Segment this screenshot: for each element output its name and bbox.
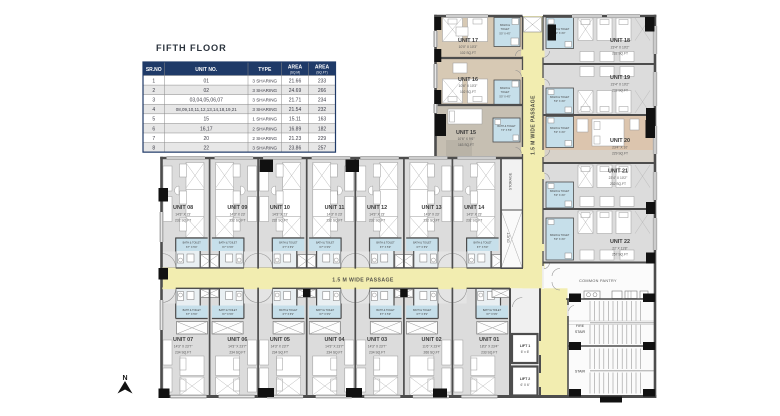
svg-text:UNIT 18: UNIT 18 [610,38,630,44]
svg-text:266: 266 [318,88,327,94]
svg-text:SR.NO: SR.NO [146,67,162,73]
svg-text:BATH & TOILET: BATH & TOILET [497,125,516,128]
svg-text:1 SHARING: 1 SHARING [252,117,277,122]
svg-text:UNIT NO.: UNIT NO. [195,67,218,73]
svg-text:FIFTH FLOOR: FIFTH FLOOR [156,43,227,53]
svg-text:BATH & TOILET: BATH & TOILET [219,242,238,245]
svg-text:22' X 11'8": 22' X 11'8" [612,247,628,251]
svg-text:182: 182 [318,126,327,132]
svg-text:232 SQ.FT: 232 SQ.FT [424,219,440,223]
svg-text:5: 5 [152,117,155,123]
svg-text:3 SHARING: 3 SHARING [252,88,277,93]
svg-text:14'3" X 23': 14'3" X 23' [272,213,288,217]
svg-text:11'6" X 23'4": 11'6" X 23'4" [422,345,441,349]
svg-text:6'7" X 5'9": 6'7" X 5'9" [486,313,497,316]
svg-text:232 SQ.FT: 232 SQ.FT [612,51,628,55]
svg-text:BATH & TOILET: BATH & TOILET [376,242,395,245]
svg-text:UNIT 04: UNIT 04 [324,337,344,343]
svg-text:BATH & TOILET: BATH & TOILET [316,242,335,245]
svg-text:23'4" X 10': 23'4" X 10' [612,146,628,150]
svg-text:LIFT 2: LIFT 2 [520,377,531,381]
svg-text:UNIT 22: UNIT 22 [610,239,630,245]
svg-text:6: 6 [152,126,155,132]
svg-text:257 SQ.FT: 257 SQ.FT [612,252,628,256]
svg-text:08,09,10,11,12,13,14,18,19,21: 08,09,10,11,12,13,14,18,19,21 [176,107,237,112]
svg-text:UNIT 09: UNIT 09 [227,205,247,211]
svg-text:5'0" X 4'0": 5'0" X 4'0" [554,131,565,134]
svg-text:UNIT 16: UNIT 16 [458,77,478,83]
svg-text:UNIT 10: UNIT 10 [270,205,290,211]
svg-text:(SQ.M): (SQ.M) [290,71,300,75]
svg-text:BASIN & TOILET: BASIN & TOILET [550,127,570,130]
svg-text:BATH & TOILET: BATH & TOILET [279,242,298,245]
svg-text:163 SQ.FT: 163 SQ.FT [458,143,474,147]
svg-text:6'7" X 5'9": 6'7" X 5'9" [222,246,233,249]
svg-text:UNIT 11: UNIT 11 [325,205,345,211]
svg-text:6'7" X 5'9": 6'7" X 5'9" [283,313,294,316]
svg-text:BATH & TOILET: BATH & TOILET [279,309,298,312]
svg-text:229 SQ.FT: 229 SQ.FT [612,151,628,155]
svg-text:6'7" X 5'9": 6'7" X 5'9" [380,313,391,316]
svg-text:1.5 M WIDE PASSAGE: 1.5 M WIDE PASSAGE [531,95,537,155]
svg-text:UNIT 12: UNIT 12 [367,205,387,211]
svg-text:23'4" X 10'2": 23'4" X 10'2" [609,176,628,180]
svg-text:1.5 M WIDE PASSAGE: 1.5 M WIDE PASSAGE [332,278,394,284]
svg-text:233 SQ.FT: 233 SQ.FT [481,351,497,355]
svg-text:21.66: 21.66 [289,78,302,84]
svg-text:10'6" X 10'3": 10'6" X 10'3" [459,84,478,88]
svg-text:6'7" X 5'9": 6'7" X 5'9" [417,313,428,316]
svg-text:2 SHARING: 2 SHARING [252,126,277,131]
svg-text:5'0" X 4'0": 5'0" X 4'0" [499,32,510,35]
svg-text:UNIT 20: UNIT 20 [610,138,630,144]
svg-text:BATH & TOILET: BATH & TOILET [316,309,335,312]
svg-text:232 SQ.FT: 232 SQ.FT [466,219,482,223]
svg-text:14'3" X 23'7": 14'3" X 23'7" [325,345,344,349]
svg-text:5'0" X 4'0": 5'0" X 4'0" [499,95,510,98]
svg-text:234 SQ.FT: 234 SQ.FT [229,351,245,355]
svg-text:6'7" X 5'9": 6'7" X 5'9" [319,313,330,316]
svg-text:BASIN & TOILET: BASIN & TOILET [550,96,570,99]
svg-text:232 SQ.FT: 232 SQ.FT [326,219,342,223]
svg-text:14'3" X 23': 14'3" X 23' [230,213,246,217]
svg-text:1: 1 [152,78,155,84]
svg-text:232 SQ.FT: 232 SQ.FT [175,219,191,223]
svg-text:234 SQ.FT: 234 SQ.FT [272,351,288,355]
svg-text:UNIT 08: UNIT 08 [173,205,193,211]
svg-text:14'3" X 23'7": 14'3" X 23'7" [271,345,290,349]
svg-text:BATH & TOILET: BATH & TOILET [183,242,202,245]
svg-text:5'0" X 4'0": 5'0" X 4'0" [554,238,565,241]
svg-text:6'7" X 5'9": 6'7" X 5'9" [186,246,197,249]
svg-text:16,17: 16,17 [200,126,213,132]
svg-text:N: N [122,375,127,382]
svg-text:163: 163 [318,117,327,123]
svg-text:23.86: 23.86 [289,145,302,151]
svg-text:7'3" X 5'6": 7'3" X 5'6" [501,129,512,132]
svg-text:20: 20 [203,136,209,142]
svg-text:TOILET: TOILET [501,28,510,31]
svg-text:21.23: 21.23 [289,136,302,142]
svg-text:UNIT 15: UNIT 15 [456,130,476,136]
svg-text:03,04,05,06,07: 03,04,05,06,07 [190,98,224,104]
svg-text:232 SQ.FT: 232 SQ.FT [272,219,288,223]
svg-text:266 SQ.FT: 266 SQ.FT [424,351,440,355]
svg-text:UNIT 07: UNIT 07 [173,337,193,343]
svg-text:14'3" X 23': 14'3" X 23' [369,213,385,217]
svg-text:UNIT 01: UNIT 01 [479,337,499,343]
svg-text:6'7" X 5'9": 6'7" X 5'9" [319,246,330,249]
svg-text:21.71: 21.71 [289,98,302,104]
svg-text:10'6" X 9'6": 10'6" X 9'6" [458,137,476,141]
svg-text:5'0" X 4'0": 5'0" X 4'0" [554,194,565,197]
svg-text:UNIT 19: UNIT 19 [610,75,630,81]
svg-text:6' x 6': 6' x 6' [521,350,530,354]
svg-text:3 SHARING: 3 SHARING [252,145,277,150]
svg-text:232 SQ.FT: 232 SQ.FT [229,219,245,223]
svg-text:234 SQ.FT: 234 SQ.FT [326,351,342,355]
svg-text:BASIN &: BASIN & [500,87,510,90]
svg-text:18'3" X 23'4": 18'3" X 23'4" [480,345,499,349]
svg-text:102 SQ.FT: 102 SQ.FT [460,51,476,55]
svg-text:UNIT 21: UNIT 21 [608,169,628,175]
svg-text:232: 232 [318,107,327,113]
svg-text:DUCT: DUCT [507,232,511,243]
svg-text:102 SQ.FT: 102 SQ.FT [460,90,476,94]
svg-text:232 SQ.FT: 232 SQ.FT [612,88,628,92]
svg-text:UNIT 17: UNIT 17 [458,38,478,44]
svg-text:LIFT 1: LIFT 1 [520,344,531,348]
svg-text:UNIT 03: UNIT 03 [367,337,387,343]
svg-text:14'3" X 23': 14'3" X 23' [466,213,482,217]
svg-text:234: 234 [318,98,327,104]
svg-text:BATH & TOILET: BATH & TOILET [413,242,432,245]
svg-text:16.89: 16.89 [289,126,302,132]
svg-text:BASIN & TOILET: BASIN & TOILET [550,234,570,237]
svg-text:2 SHARING: 2 SHARING [252,136,277,141]
svg-text:23'4" X 10'2": 23'4" X 10'2" [611,46,630,50]
svg-text:14'3" X 23': 14'3" X 23' [327,213,343,217]
svg-text:02: 02 [203,88,209,94]
svg-text:UNIT 13: UNIT 13 [422,205,442,211]
svg-text:14'3" X 23'7": 14'3" X 23'7" [228,345,247,349]
svg-text:UNIT 02: UNIT 02 [422,337,442,343]
svg-text:BATH & TOILET: BATH & TOILET [183,309,202,312]
svg-text:UNIT 06: UNIT 06 [227,337,247,343]
svg-text:6'7" X 5'9": 6'7" X 5'9" [186,313,197,316]
svg-text:14'3" X 23'7": 14'3" X 23'7" [174,345,193,349]
svg-text:3 SHARING: 3 SHARING [252,78,277,83]
svg-text:14'3" X 23': 14'3" X 23' [424,213,440,217]
svg-text:2: 2 [152,88,155,94]
svg-text:TOILET: TOILET [501,91,510,94]
svg-text:257: 257 [318,145,327,151]
svg-text:232 SQ.FT: 232 SQ.FT [369,219,385,223]
svg-text:(SQ.FT): (SQ.FT) [316,71,328,75]
svg-text:8: 8 [152,145,155,151]
svg-text:UNIT 05: UNIT 05 [270,337,290,343]
svg-text:TYPE: TYPE [258,67,272,73]
svg-text:6'7" X 5'9": 6'7" X 5'9" [380,246,391,249]
svg-text:BATH & TOILET: BATH & TOILET [473,242,492,245]
svg-text:14'3" X 23'7": 14'3" X 23'7" [368,345,387,349]
svg-text:6'7" X 5'9": 6'7" X 5'9" [283,246,294,249]
svg-text:BASIN & TOILET: BASIN & TOILET [550,190,570,193]
svg-text:22: 22 [203,145,209,151]
svg-text:234 SQ.FT: 234 SQ.FT [369,351,385,355]
svg-text:229: 229 [318,136,327,142]
svg-text:232 SQ.FT: 232 SQ.FT [610,182,626,186]
svg-text:23'4" X 10'2": 23'4" X 10'2" [611,83,630,87]
svg-text:15.11: 15.11 [289,117,301,123]
svg-text:5'0" X 4'0": 5'0" X 4'0" [554,100,565,103]
svg-text:3 SHARING: 3 SHARING [252,107,277,112]
svg-text:STAIR: STAIR [575,370,586,374]
svg-text:STAIR: STAIR [575,330,586,334]
svg-text:7: 7 [152,136,155,142]
svg-text:21.54: 21.54 [289,107,302,113]
svg-text:BATH & TOILET: BATH & TOILET [376,309,395,312]
svg-text:COMMON PANTRY: COMMON PANTRY [579,279,617,283]
svg-text:BATH & TOILET: BATH & TOILET [413,309,432,312]
svg-text:6'7" X 5'9": 6'7" X 5'9" [222,313,233,316]
svg-text:6'7" X 5'9": 6'7" X 5'9" [477,246,488,249]
svg-text:BATH & TOILET: BATH & TOILET [219,309,238,312]
svg-text:6'7" X 5'9": 6'7" X 5'9" [417,246,428,249]
svg-text:3 SHARING: 3 SHARING [252,98,277,103]
svg-text:24.69: 24.69 [289,88,302,94]
svg-text:6' X 6': 6' X 6' [521,383,530,387]
svg-text:15: 15 [203,117,209,123]
svg-text:BASIN &: BASIN & [500,24,510,27]
svg-text:UNIT 14: UNIT 14 [464,205,484,211]
svg-text:BATH & TOILET: BATH & TOILET [483,309,502,312]
svg-text:01: 01 [203,78,209,84]
svg-text:233: 233 [318,78,327,84]
svg-text:3: 3 [152,98,155,104]
svg-text:10'0" X 10'3": 10'0" X 10'3" [459,45,478,49]
svg-text:STORAGE: STORAGE [509,172,513,190]
svg-text:234 SQ.FT: 234 SQ.FT [175,351,191,355]
svg-text:14'3" X 23': 14'3" X 23' [175,213,191,217]
svg-text:4: 4 [152,107,155,113]
